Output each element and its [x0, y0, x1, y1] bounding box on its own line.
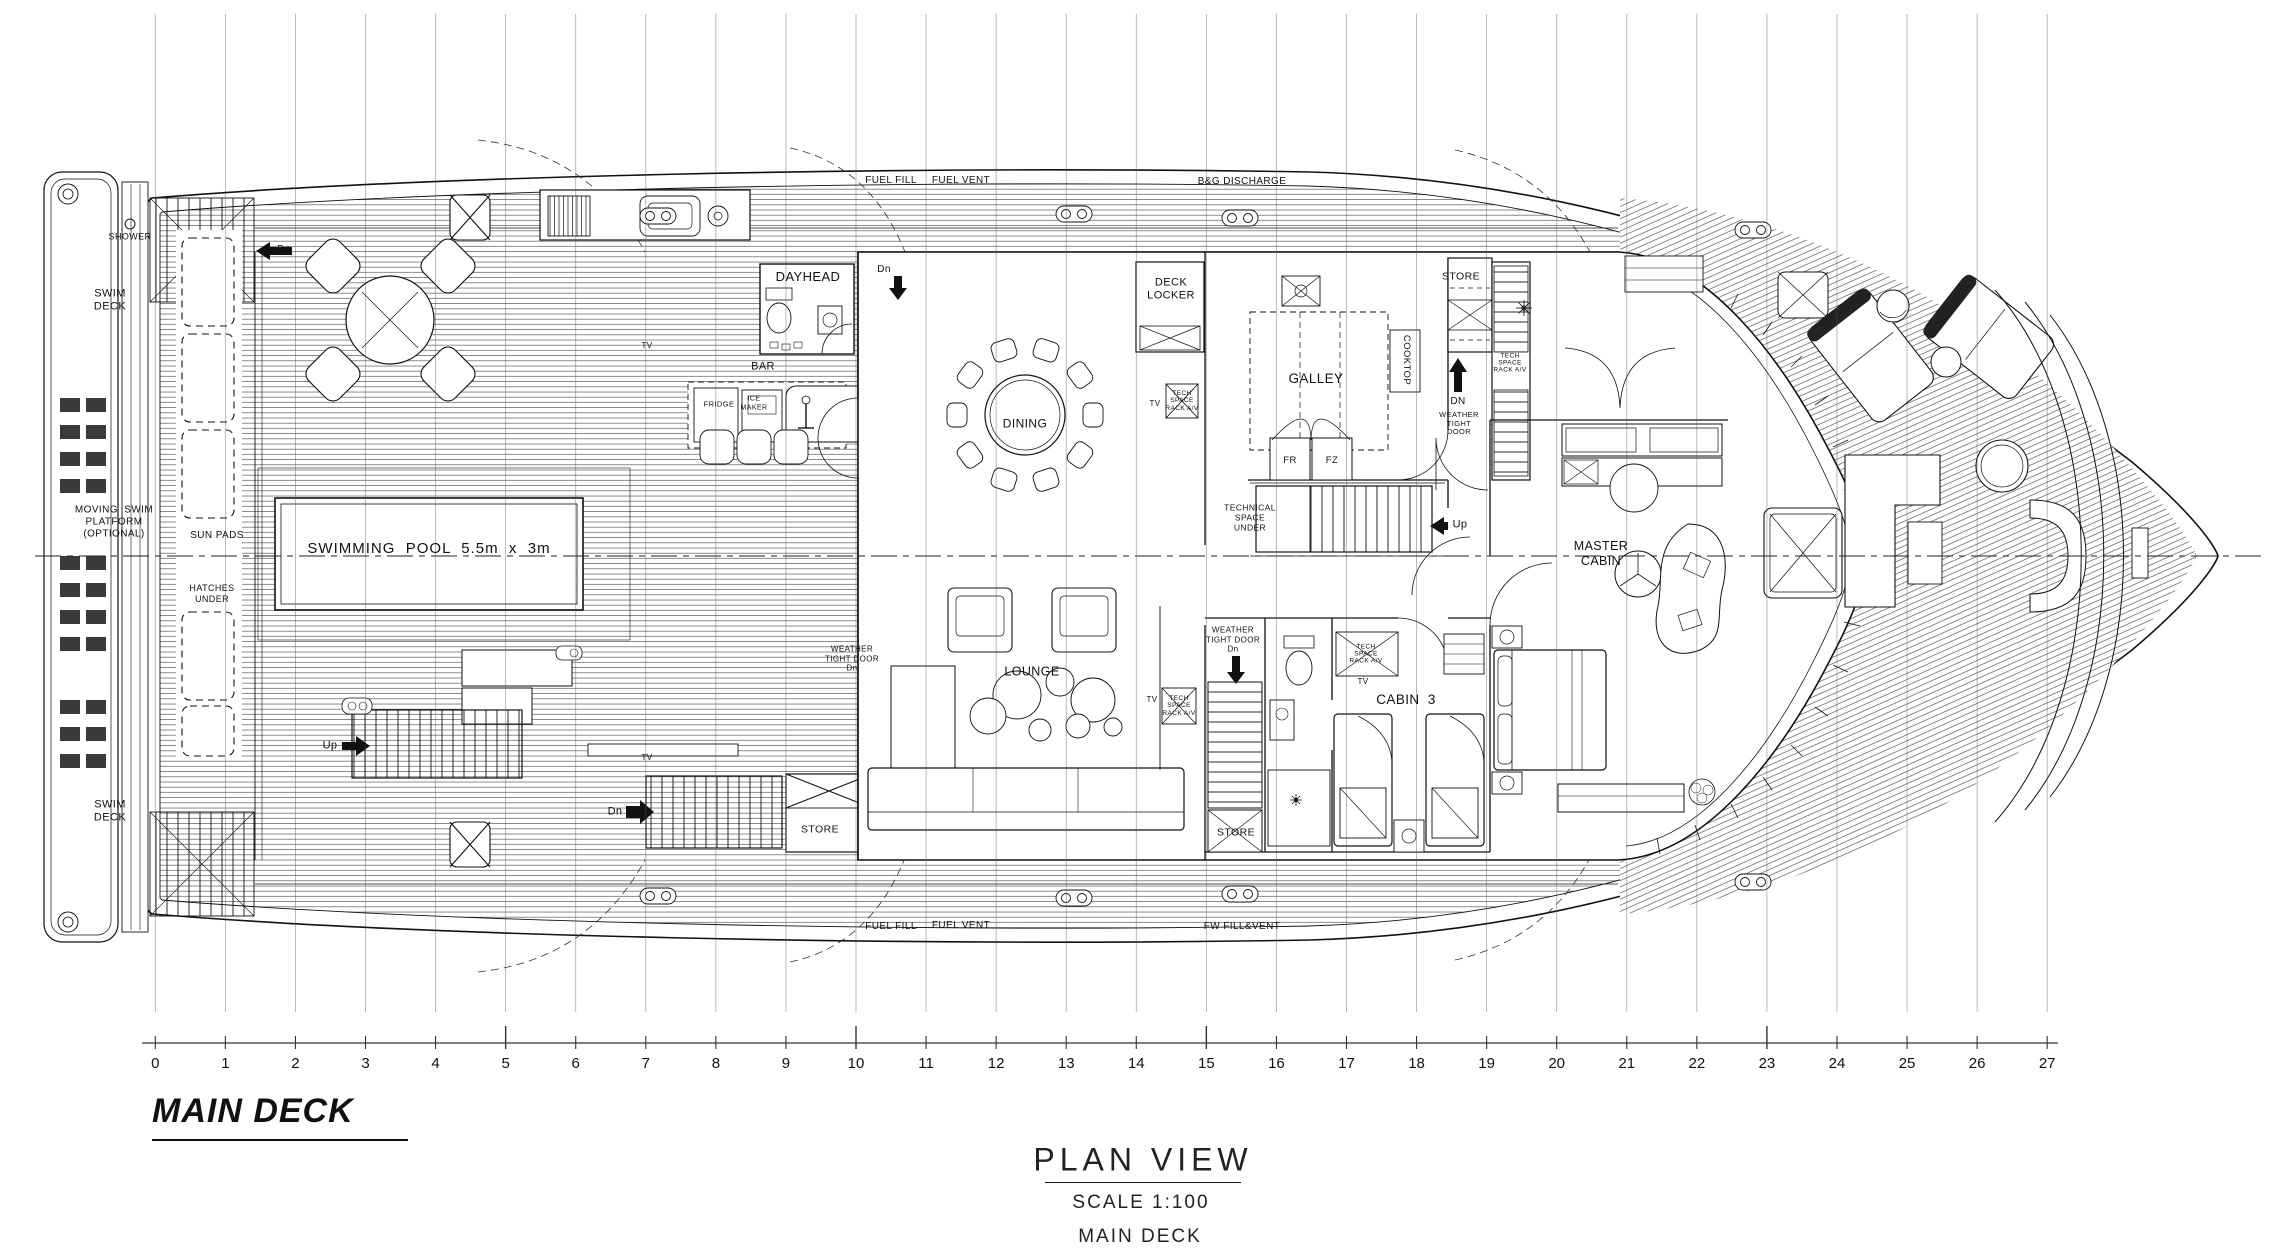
ruler-number: 19: [1478, 1055, 1495, 1072]
scale-label: SCALE 1:100: [1072, 1192, 1209, 1214]
ruler-number: 20: [1548, 1055, 1565, 1072]
label-dayhead: DAYHEAD: [776, 269, 841, 285]
view-title: PLAN VIEW: [1033, 1142, 1252, 1179]
label-hatches-under: HATCHES UNDER: [189, 583, 234, 605]
label-fr: FR: [1283, 455, 1296, 467]
ruler-number: 18: [1408, 1055, 1425, 1072]
label-store-cabin: STORE: [1217, 827, 1255, 840]
ruler-number: 2: [291, 1055, 299, 1072]
label-swim-deck-bottom: SWIM DECK: [94, 799, 126, 826]
ruler-number: 16: [1268, 1055, 1285, 1072]
annotation-bg-discharge: B&G DISCHARGE: [1198, 176, 1287, 188]
technical-stairs: [1250, 483, 1445, 556]
sun-pads: [176, 230, 242, 760]
ruler-number: 23: [1759, 1055, 1776, 1072]
label-swim-deck-top: SWIM DECK: [94, 288, 126, 315]
grill-icon: [548, 196, 590, 236]
label-store-aft: STORE: [801, 824, 839, 837]
ruler-number: 12: [988, 1055, 1005, 1072]
dining-table: [985, 375, 1065, 455]
ruler-number: 11: [918, 1055, 934, 1072]
ruler-number: 17: [1338, 1055, 1355, 1072]
label-master-cabin: MASTER CABIN: [1574, 539, 1629, 570]
label-cabin3: CABIN 3: [1376, 692, 1435, 708]
label-tv-bar: TV: [641, 341, 652, 351]
stairs-down-deck: [646, 776, 782, 848]
label-ice-maker: ICE MAKER: [741, 395, 768, 412]
bed: [1334, 714, 1392, 846]
label-wtd-cabin: WEATHER TIGHT DOOR Dn: [1206, 626, 1260, 655]
view-title-underline: [1045, 1182, 1241, 1183]
label-tech-rack-cabin: TECH SPACE RACK A/V: [1349, 643, 1382, 664]
annotation-fuel-fill-top: FUEL FILL: [865, 175, 917, 187]
label-tech-rack-1: TECH SPACE RACK A/V: [1165, 390, 1198, 412]
ruler-number: 6: [572, 1055, 580, 1072]
label-fridge: FRIDGE: [704, 399, 735, 408]
label-swimming-pool: SWIMMING POOL 5.5m x 3m: [307, 540, 550, 558]
label-wtd-fwd: WEATHER TIGHT DOOR: [1439, 411, 1479, 437]
label-up-aft: Up: [323, 739, 338, 752]
label-fz: FZ: [1326, 455, 1338, 467]
view-subtitle: MAIN DECK: [1078, 1226, 1202, 1248]
annotation-fuel-vent-top: FUEL VENT: [932, 175, 990, 187]
label-tv-aft: TV: [641, 753, 652, 763]
label-cooktop: COOKTOP: [1400, 335, 1412, 385]
master-bed: [1494, 650, 1606, 770]
label-lounge: LOUNGE: [1004, 664, 1059, 679]
drawing-sheet: SHOWER SWIM DECK SWIM DECK MOVING SWIM P…: [0, 0, 2274, 1256]
label-tv-salon: TV: [1146, 695, 1157, 705]
label-shower: SHOWER: [109, 232, 152, 243]
annotation-fw-fill-vent: FW FILL&VENT: [1204, 921, 1280, 933]
ruler-number: 3: [361, 1055, 369, 1072]
label-dn-boarding: Dn: [277, 244, 291, 256]
ruler-number: 7: [642, 1055, 650, 1072]
label-dining: DINING: [1003, 417, 1047, 432]
bed: [1426, 714, 1484, 846]
ruler-number: 5: [501, 1055, 509, 1072]
label-tech-rack-salon: TECH SPACE RACK A/V: [1162, 695, 1195, 717]
ruler-number: 9: [782, 1055, 790, 1072]
label-tech-rack-fwd: TECH SPACE RACK A/V: [1493, 352, 1526, 373]
annotation-fuel-fill-bottom: FUEL FILL: [865, 921, 917, 933]
label-technical-space: TECHNICAL SPACE UNDER: [1224, 503, 1276, 534]
ruler-number: 26: [1969, 1055, 1986, 1072]
ruler-number: 1: [221, 1055, 229, 1072]
label-wtd-aft: WEATHER TIGHT DOOR Dn: [825, 645, 879, 674]
label-deck-locker: DECK LOCKER: [1147, 277, 1195, 304]
ruler-number: 15: [1198, 1055, 1215, 1072]
ruler-number: 27: [2039, 1055, 2056, 1072]
ruler-number: 25: [1899, 1055, 1916, 1072]
label-tv-locker: TV: [1149, 399, 1160, 409]
ruler-number: 14: [1128, 1055, 1145, 1072]
stairs-up-aft: [352, 710, 522, 778]
label-dn-top: Dn: [877, 264, 891, 276]
label-up-center: Up: [1453, 518, 1468, 531]
frame-ruler: [142, 1026, 2058, 1049]
ruler-number: 21: [1618, 1055, 1635, 1072]
label-dn-aft: Dn: [608, 805, 623, 818]
ruler-number: 8: [712, 1055, 720, 1072]
label-store-fwd: STORE: [1442, 271, 1480, 284]
deck-title: MAIN DECK: [152, 1092, 408, 1141]
ruler-number: 24: [1829, 1055, 1846, 1072]
ruler-number: 10: [848, 1055, 865, 1072]
label-moving-platform: MOVING SWIM PLATFORM (OPTIONAL): [75, 505, 153, 542]
ruler-number: 4: [431, 1055, 439, 1072]
annotation-fuel-vent-bottom: FUEL VENT: [932, 920, 990, 932]
label-tv-cabin: TV: [1357, 677, 1368, 687]
deck-locker-room: [1136, 262, 1204, 352]
ruler-number: 22: [1688, 1055, 1705, 1072]
stool: [1610, 464, 1658, 512]
label-dn-fwd: DN: [1450, 396, 1465, 408]
label-bar: BAR: [751, 360, 775, 373]
stairs-down-cabin: [1208, 682, 1262, 808]
label-sun-pads: SUN PADS: [190, 530, 244, 542]
label-galley: GALLEY: [1289, 371, 1344, 387]
ruler-number: 13: [1058, 1055, 1075, 1072]
ruler-number: 0: [151, 1055, 159, 1072]
